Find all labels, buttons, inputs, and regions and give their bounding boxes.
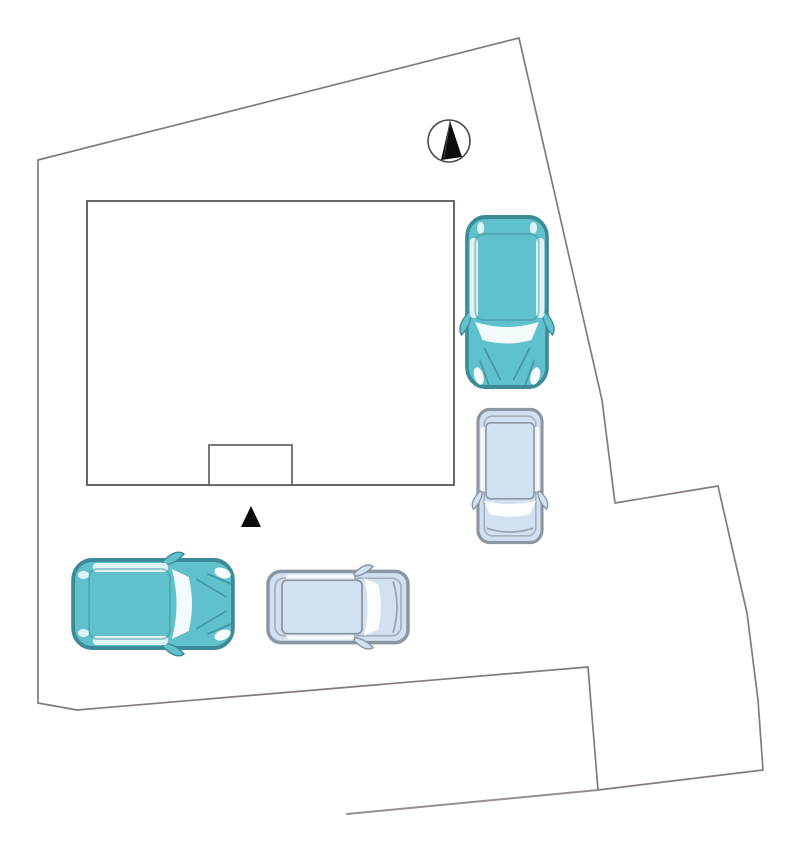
site-plan-canvas [0, 0, 800, 855]
car-teal-lower-left [73, 552, 233, 656]
building-footprint [87, 201, 454, 485]
entrance-porch [209, 445, 292, 485]
road-edge-line [347, 790, 598, 814]
building-outline [87, 201, 454, 485]
van-blue-lower-middle [268, 565, 408, 649]
van-blue-right [472, 410, 548, 543]
car-teal-upper-right [460, 217, 554, 387]
entrance-marker-triangle [241, 506, 261, 527]
north-arrow-icon [428, 120, 470, 162]
